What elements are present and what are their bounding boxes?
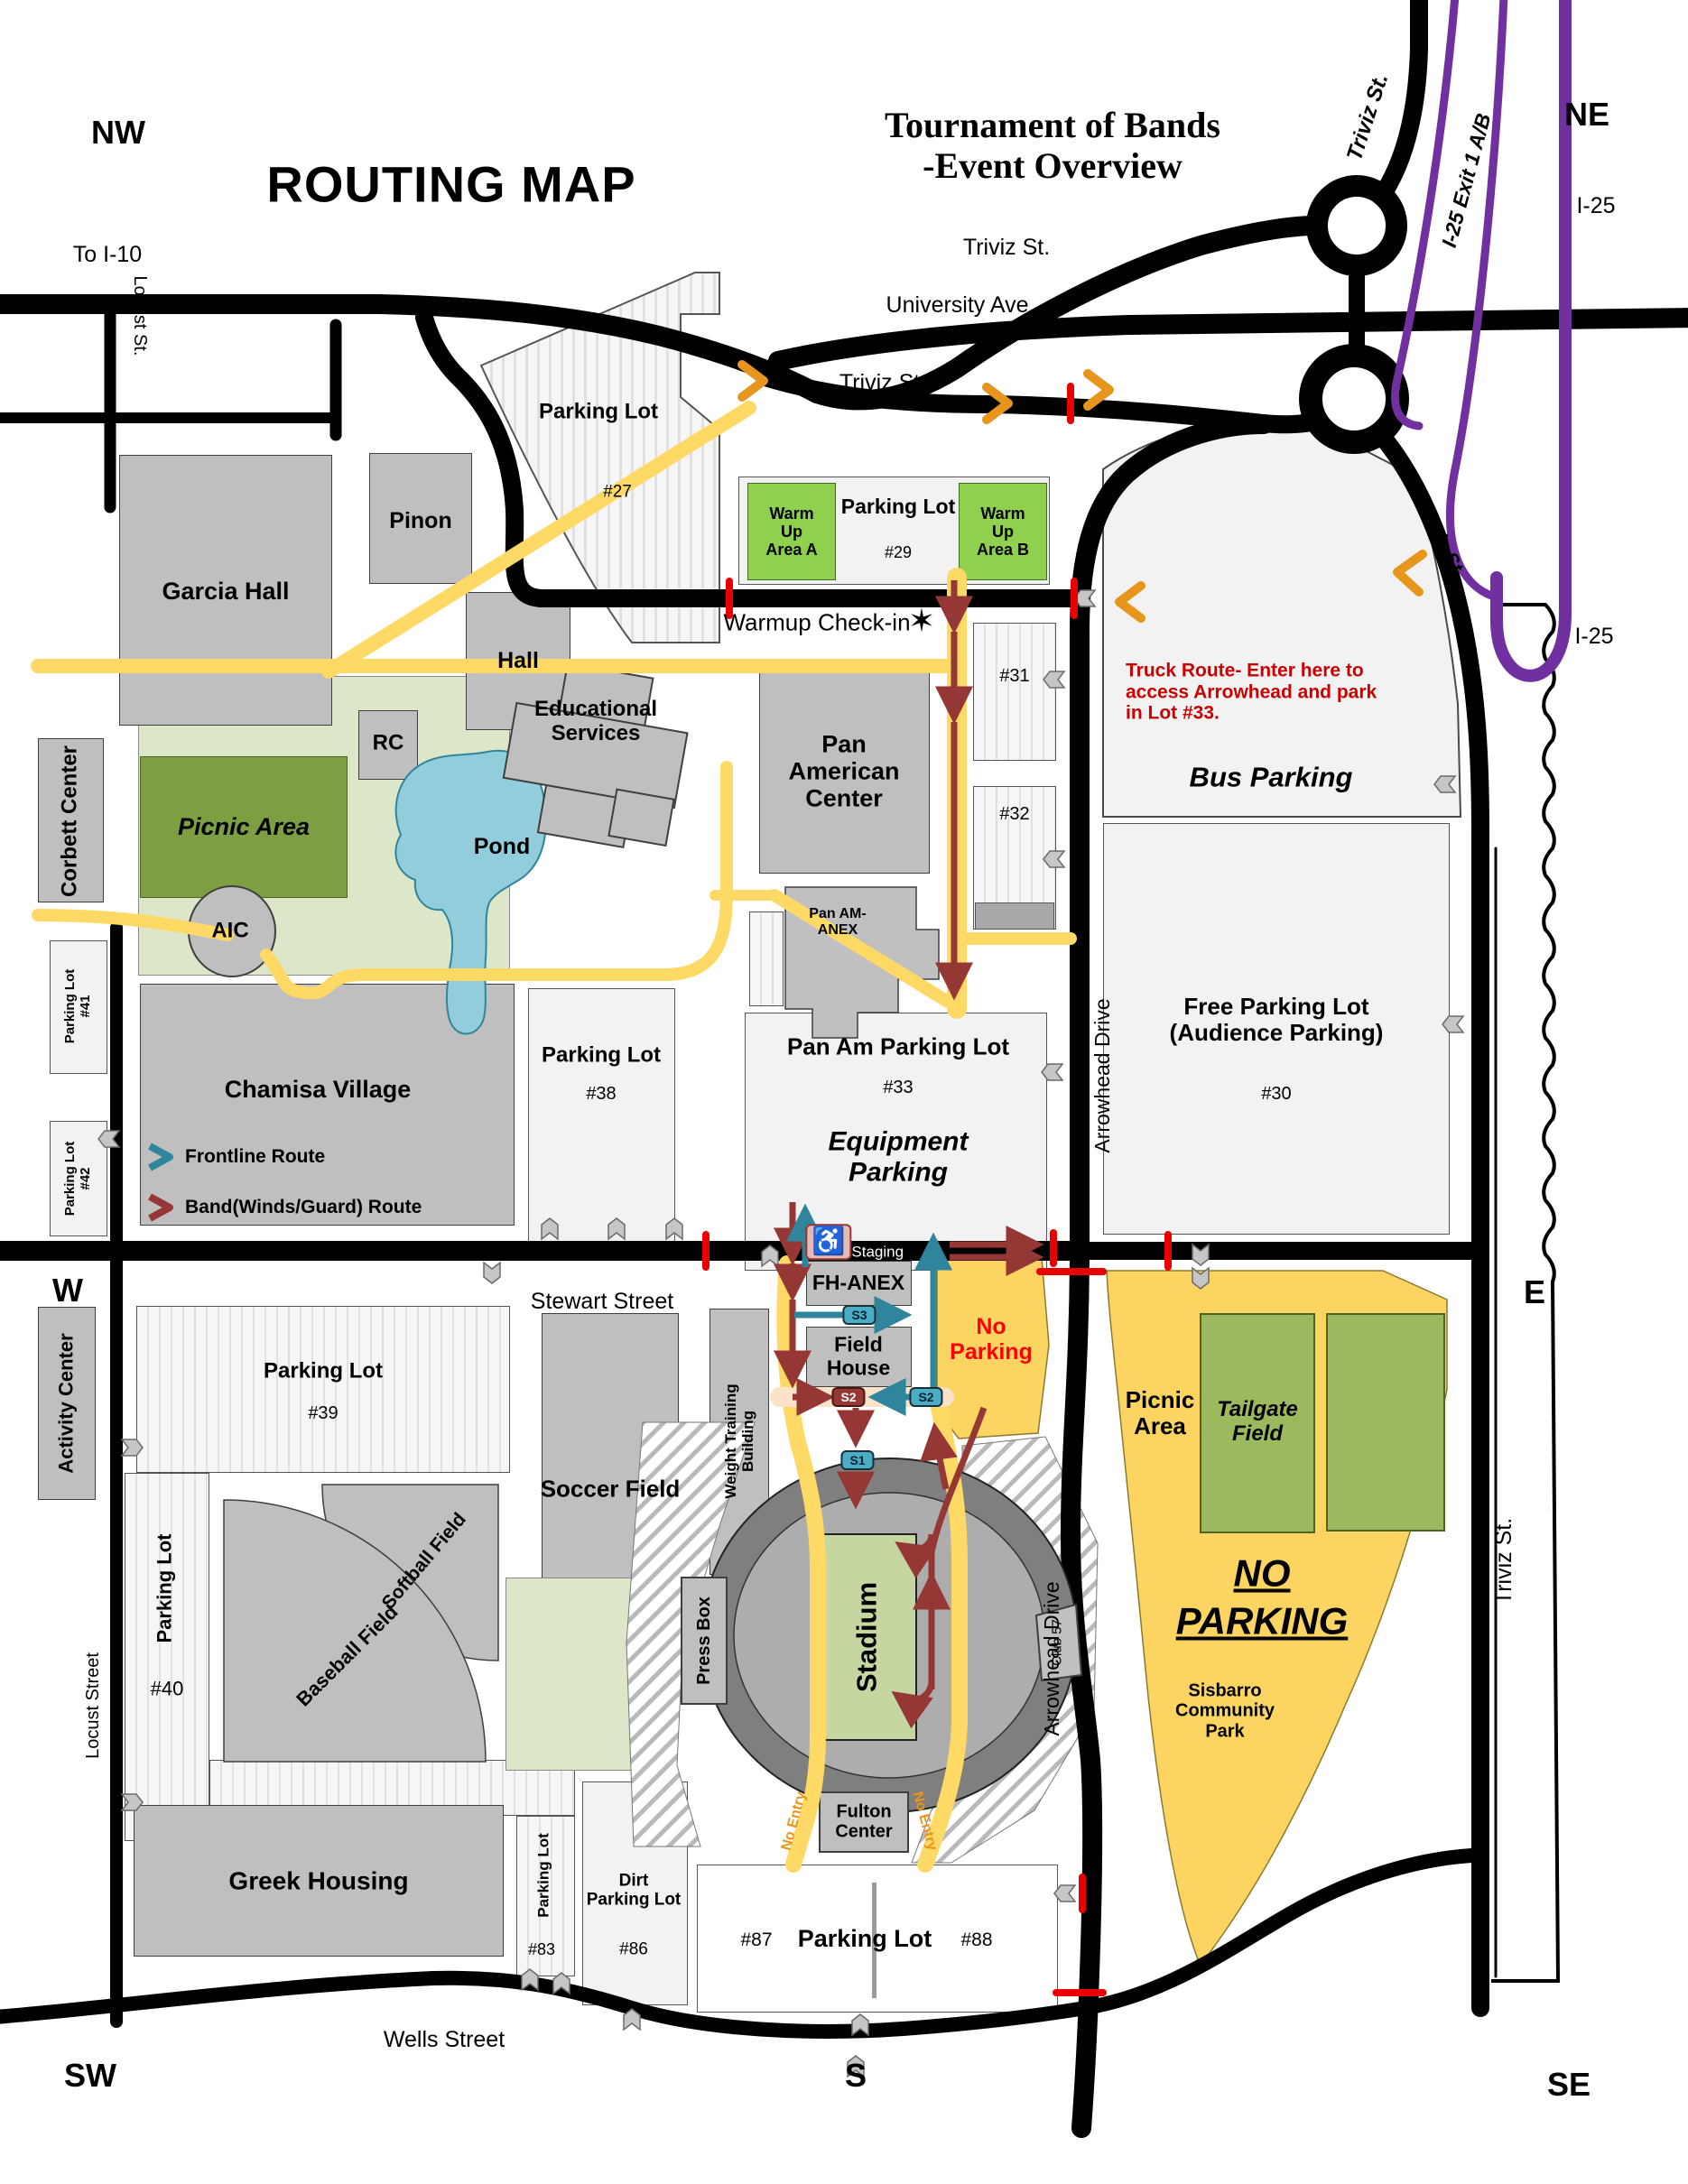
- stadium-field: [820, 1534, 916, 1740]
- pond-shape: [395, 751, 545, 1034]
- frontline-route: [794, 1213, 933, 1397]
- legend-band-chevron: [150, 1197, 170, 1218]
- routing-map-canvas: ROUTING MAP Tournament of Bands -Event O…: [0, 0, 1688, 2184]
- fulton-center-building: [820, 1792, 908, 1852]
- road-network: [0, 0, 1688, 2184]
- roundabout-south: [1311, 356, 1397, 442]
- roundabout-north: [1317, 186, 1396, 265]
- tailgate-field-green-2: [1327, 1314, 1444, 1531]
- no-parking-wedge: [937, 1258, 1049, 1439]
- tailgate-field-green: [1201, 1314, 1314, 1532]
- legend-frontline-chevron: [150, 1146, 170, 1168]
- press-box-building: [682, 1578, 727, 1704]
- boundary-wavy-line: [1491, 605, 1558, 1981]
- club-57-building: [1036, 1605, 1081, 1680]
